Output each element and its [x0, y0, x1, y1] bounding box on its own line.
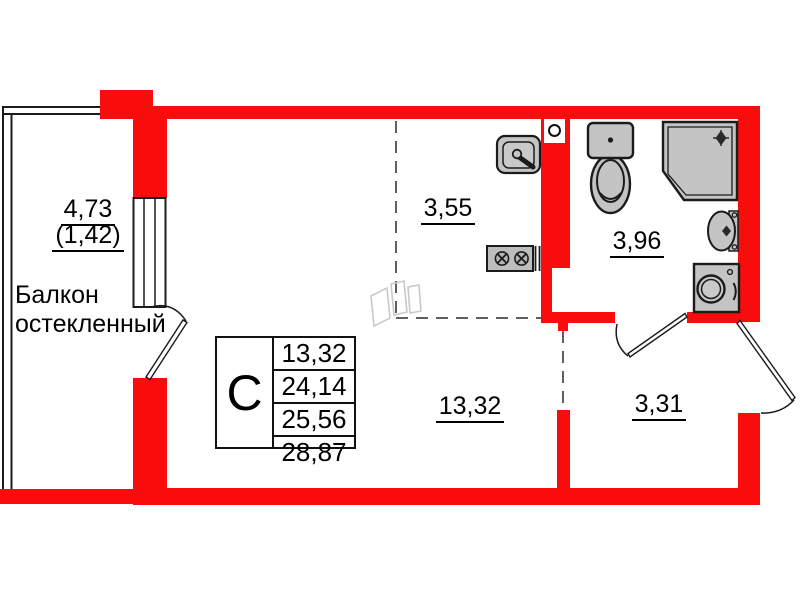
wash-basin-icon — [708, 211, 738, 251]
balcony-coefficient-value: (1,42) — [52, 222, 123, 252]
balcony-name-line2: остекленный — [15, 310, 166, 339]
info-value-apartment-area: 24,14 — [274, 371, 354, 404]
bathroom-area-value: 3,96 — [610, 228, 665, 258]
info-value-living-area: 13,32 — [274, 338, 354, 371]
bathroom-area-label: 3,96 — [596, 228, 678, 258]
kitchen-sink-icon — [497, 136, 540, 173]
toilet-icon — [588, 123, 633, 213]
vent-duct-icon — [544, 119, 565, 143]
balcony-name-label: Балкон остекленный — [15, 281, 166, 339]
entrance-door — [737, 321, 795, 414]
floor-plan: 4,73 (1,42) Балкон остекленный 3,55 3,96… — [0, 0, 800, 600]
balcony-coefficient-label: (1,42) — [36, 222, 140, 252]
bathroom-door — [616, 314, 687, 358]
apartment-info-table: С 13,32 24,14 25,56 28,87 — [215, 336, 356, 449]
apartment-info-values: 13,32 24,14 25,56 28,87 — [274, 338, 354, 447]
stove-icon — [487, 246, 540, 271]
kitchen-area-label: 3,55 — [407, 195, 489, 225]
shower-cabin-icon — [663, 122, 737, 200]
hallway-area-value: 3,31 — [632, 391, 687, 421]
info-value-total-with-balcony: 28,87 — [274, 437, 354, 468]
living-room-area-value: 13,32 — [436, 393, 505, 423]
balcony-name-line1: Балкон — [15, 281, 166, 310]
hallway-area-label: 3,31 — [618, 391, 700, 421]
living-room-area-label: 13,32 — [424, 393, 516, 423]
kitchen-area-value: 3,55 — [421, 195, 476, 225]
apartment-type-label: С — [217, 338, 274, 447]
washing-machine-icon — [694, 264, 739, 312]
info-value-total-area: 25,56 — [274, 404, 354, 437]
